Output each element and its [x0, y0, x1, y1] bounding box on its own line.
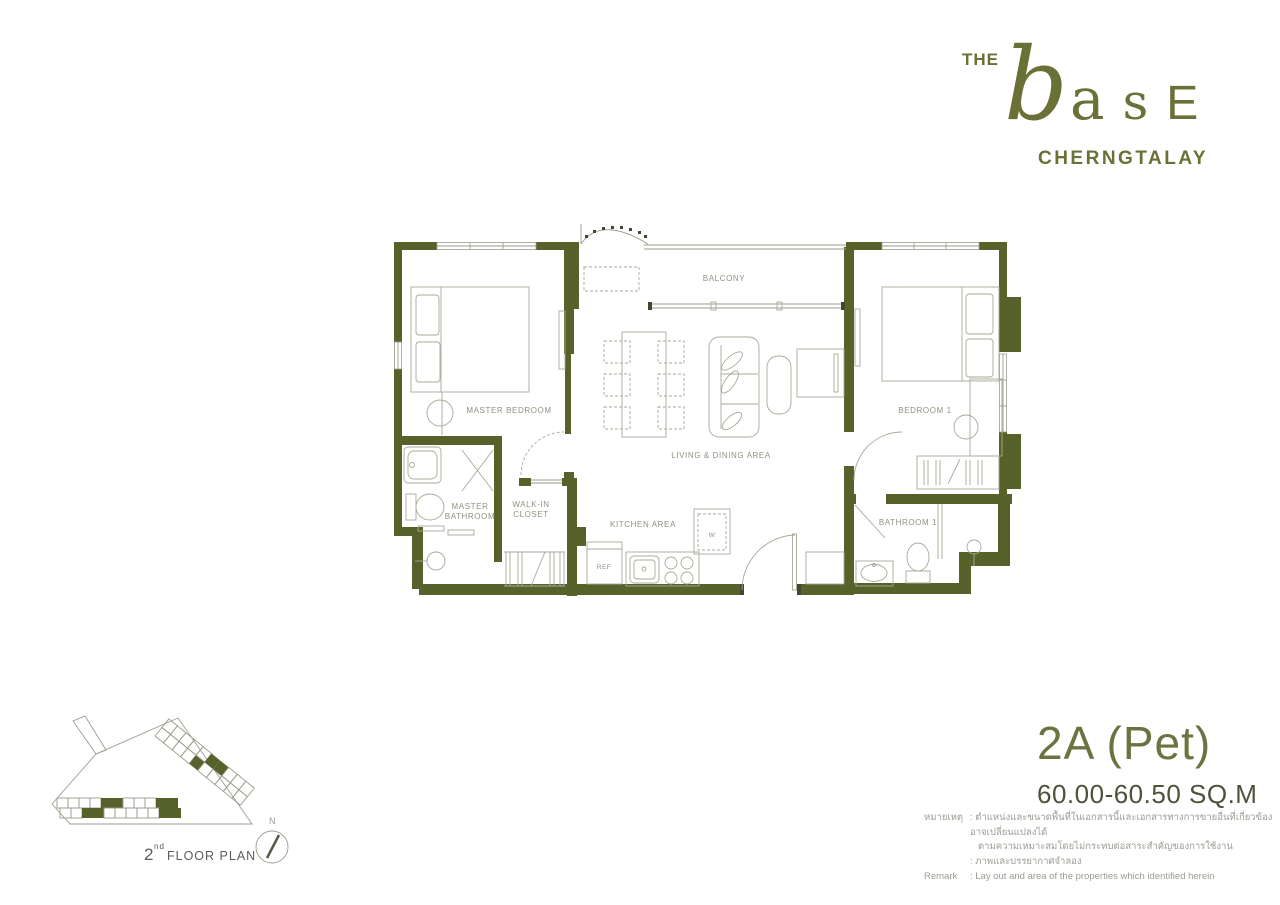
unit-info: 2A (Pet) 60.00-60.50 SQ.M — [1037, 716, 1257, 810]
windows — [395, 243, 1007, 433]
label-bedroom1: BEDROOM 1 — [898, 406, 951, 415]
balcony-ac-pad — [584, 267, 639, 291]
unit-area: 60.00-60.50 SQ.M — [1037, 779, 1257, 810]
brand-logo: THE basE CHERNGTALAY — [958, 42, 1213, 177]
label-master-bedroom: MASTER BEDROOM — [466, 406, 551, 415]
label-kitchen: KITCHEN AREA — [610, 520, 676, 529]
balcony-sliding-door — [648, 302, 845, 310]
brand-letter-e: E — [1166, 77, 1198, 130]
remarks-block: หมายเหตุ : ตำแหน่งและขนาดพื้นที่ในเอกสาร… — [924, 811, 1276, 885]
unit-type: 2A (Pet) — [1037, 716, 1257, 770]
label-master-bath-1: MASTER — [452, 502, 489, 511]
living-dining-furniture — [604, 332, 844, 437]
balcony-railing — [581, 224, 846, 249]
remark-line2: ตามความเหมาะสมโดยไม่กระทบต่อสาระสำคัญของ… — [970, 840, 1276, 855]
label-closet-2: CLOSET — [513, 510, 549, 519]
remark-line1: : ตำแหน่งและขนาดพื้นที่ในเอกสารนี้และเอก… — [970, 811, 1276, 840]
brand-wordmark: basE — [1004, 26, 1198, 143]
label-balcony: BALCONY — [703, 274, 745, 283]
label-refrigerator: REF — [597, 564, 611, 571]
floor-label: FLOOR PLAN — [167, 849, 256, 863]
site-key-plan: 2 nd FLOOR PLAN N — [40, 708, 305, 878]
remark-label-en: Remark — [924, 870, 970, 885]
floor-suffix: nd — [154, 842, 165, 851]
label-master-bath-2: BATHROOM — [445, 512, 495, 521]
remark-line3: : ภาพและบรรยากาศจำลอง — [970, 855, 1276, 870]
walk-in-closet-rods — [504, 552, 565, 586]
north-label: N — [269, 816, 276, 826]
entrance-door — [742, 534, 844, 590]
floor-plan-page: THE basE CHERNGTALAY — [0, 0, 1280, 905]
unit-floor-plan: MASTER BEDROOM BEDROOM 1 LIVING & DINING… — [394, 214, 1034, 604]
site-building-rows — [57, 719, 254, 818]
remark-line-en: : Lay out and area of the properties whi… — [970, 870, 1276, 885]
label-washer: W — [709, 532, 716, 539]
brand-letter-a: a — [1070, 65, 1105, 133]
floor-plan-caption: 2 nd FLOOR PLAN — [144, 842, 256, 864]
walls — [394, 242, 1021, 596]
bedroom1-furniture — [854, 287, 1002, 489]
label-closet-1: WALK-IN — [512, 500, 549, 509]
brand-letter-s: s — [1123, 73, 1149, 131]
floor-number: 2 — [144, 845, 154, 864]
label-living-dining: LIVING & DINING AREA — [671, 451, 771, 460]
north-arrow-icon: N — [256, 816, 288, 863]
remark-label-thai: หมายเหตุ — [924, 811, 970, 840]
brand-the: THE — [962, 50, 999, 70]
brand-letter-b: b — [1004, 26, 1068, 143]
brand-location: CHERNGTALAY — [958, 148, 1208, 170]
master-bedroom-furniture — [411, 287, 565, 483]
label-bathroom1: BATHROOM 1 — [879, 518, 937, 527]
